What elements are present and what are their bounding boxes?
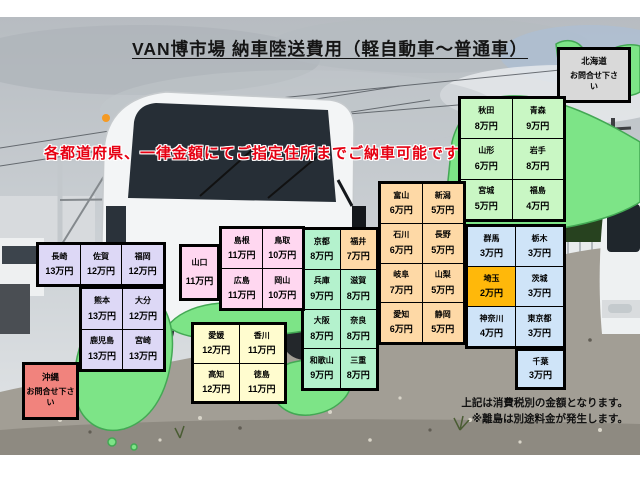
prefecture-price: 11万円 bbox=[248, 385, 276, 394]
pref-cell: 兵庫9万円 bbox=[304, 270, 340, 309]
prefecture-price: 5万円 bbox=[431, 286, 454, 295]
prefecture-price: 6万円 bbox=[390, 206, 413, 215]
letterbox-top bbox=[0, 0, 640, 17]
prefecture-price: 12万円 bbox=[87, 267, 115, 276]
pref-cell: 栃木3万円 bbox=[516, 227, 563, 266]
prefecture-name: 三重 bbox=[350, 357, 366, 365]
price-grid-kyushu-north: 長崎13万円佐賀12万円福岡12万円 bbox=[36, 242, 166, 287]
pref-cell: 埼玉2万円 bbox=[468, 267, 515, 306]
prefecture-name: 兵庫 bbox=[314, 277, 330, 285]
letterbox-bottom bbox=[0, 455, 640, 480]
pref-cell: 静岡5万円 bbox=[423, 303, 464, 342]
price-grid-yamaguchi: 山口11万円 bbox=[179, 244, 220, 301]
prefecture-name: 福島 bbox=[530, 187, 546, 195]
prefecture-name: 岐阜 bbox=[393, 271, 409, 279]
pref-cell: 奈良8万円 bbox=[341, 310, 377, 349]
prefecture-price: 5万円 bbox=[475, 202, 498, 211]
pref-cell: 福島4万円 bbox=[513, 180, 564, 219]
prefecture-name: 福井 bbox=[350, 238, 366, 246]
prefecture-price: 6万円 bbox=[475, 162, 498, 171]
pref-cell: 東京都3万円 bbox=[516, 307, 563, 346]
pref-cell: 高知12万円 bbox=[194, 364, 239, 402]
prefecture-price: 4万円 bbox=[526, 202, 549, 211]
prefecture-price: 5万円 bbox=[431, 246, 454, 255]
pref-cell: 岩手8万円 bbox=[513, 139, 564, 178]
pref-cell: 新潟5万円 bbox=[423, 184, 464, 223]
prefecture-name: 静岡 bbox=[435, 311, 451, 319]
prefecture-price: 10万円 bbox=[268, 291, 296, 300]
pref-cell: 秋田8万円 bbox=[461, 99, 512, 138]
prefecture-name: 広島 bbox=[234, 277, 250, 285]
prefecture-price: 13万円 bbox=[88, 352, 116, 361]
prefecture-price: 7万円 bbox=[390, 286, 413, 295]
pref-cell: 熊本13万円 bbox=[82, 289, 122, 329]
pref-cell: 神奈川4万円 bbox=[468, 307, 515, 346]
prefecture-name: 大分 bbox=[135, 297, 151, 305]
prefecture-name: 山梨 bbox=[435, 271, 451, 279]
prefecture-price: 11万円 bbox=[228, 251, 256, 260]
pref-cell: 宮城5万円 bbox=[461, 180, 512, 219]
prefecture-name: 東京都 bbox=[528, 315, 552, 323]
prefecture-name: 神奈川 bbox=[480, 315, 504, 323]
price-grid-kansai: 京都8万円福井7万円兵庫9万円滋賀8万円大阪8万円奈良8万円和歌山9万円三重8万… bbox=[301, 227, 379, 391]
prefecture-name: 青森 bbox=[530, 107, 546, 115]
pref-cell: 山梨5万円 bbox=[423, 264, 464, 303]
prefecture-name: 山口 bbox=[192, 259, 208, 267]
prefecture-price: 8万円 bbox=[347, 292, 370, 301]
prefecture-price: 3万円 bbox=[528, 289, 551, 298]
pref-cell: 山形6万円 bbox=[461, 139, 512, 178]
prefecture-name: 岡山 bbox=[274, 277, 290, 285]
prefecture-name: 埼玉 bbox=[484, 275, 500, 283]
price-grid-chubu: 富山6万円新潟5万円石川6万円長野5万円岐阜7万円山梨5万円愛知6万円静岡5万円 bbox=[378, 181, 466, 345]
prefecture-name: 富山 bbox=[393, 192, 409, 200]
prefecture-price: 12万円 bbox=[129, 312, 157, 321]
contact-note: お問合せ下さい bbox=[25, 387, 77, 409]
pref-cell: 茨城3万円 bbox=[516, 267, 563, 306]
prefecture-name: 宮崎 bbox=[135, 337, 151, 345]
prefecture-name: 大阪 bbox=[314, 317, 330, 325]
prefecture-price: 12万円 bbox=[129, 267, 157, 276]
prefecture-price: 5万円 bbox=[431, 206, 454, 215]
prefecture-name: 北海道 bbox=[581, 57, 607, 66]
pref-cell: 福岡12万円 bbox=[122, 245, 163, 284]
pref-cell: 徳島11万円 bbox=[240, 364, 285, 402]
prefecture-name: 福岡 bbox=[135, 253, 151, 261]
pref-cell: 石川6万円 bbox=[381, 224, 422, 263]
price-grid-chiba: 千葉3万円 bbox=[515, 348, 566, 390]
prefecture-price: 9万円 bbox=[310, 292, 333, 301]
prefecture-price: 6万円 bbox=[390, 325, 413, 334]
prefecture-price: 6万円 bbox=[390, 246, 413, 255]
price-grid-tohoku: 秋田8万円青森9万円山形6万円岩手8万円宮城5万円福島4万円 bbox=[458, 96, 566, 222]
slogan-text: 各都道府県、一律金額にてご指定住所までご納車可能です！ bbox=[44, 142, 476, 163]
pref-cell: 大阪8万円 bbox=[304, 310, 340, 349]
note-tax: 上記は消費税別の金額となります。 bbox=[461, 395, 628, 411]
prefecture-name: 京都 bbox=[314, 238, 330, 246]
pref-cell: 岐阜7万円 bbox=[381, 264, 422, 303]
prefecture-price: 8万円 bbox=[310, 332, 333, 341]
prefecture-price: 9万円 bbox=[310, 371, 333, 380]
pref-cell: 滋賀8万円 bbox=[341, 270, 377, 309]
price-grid-kyushu-south: 熊本13万円大分12万円鹿児島13万円宮崎13万円 bbox=[79, 286, 166, 372]
pref-cell: 福井7万円 bbox=[341, 230, 377, 269]
pref-cell: 香川11万円 bbox=[240, 325, 285, 363]
prefecture-price: 8万円 bbox=[475, 122, 498, 131]
pref-cell: 愛媛12万円 bbox=[194, 325, 239, 363]
prefecture-name: 秋田 bbox=[478, 107, 494, 115]
prefecture-name: 鳥取 bbox=[274, 237, 290, 245]
prefecture-price: 2万円 bbox=[480, 289, 503, 298]
prefecture-name: 鹿児島 bbox=[90, 337, 114, 345]
prefecture-price: 8万円 bbox=[526, 162, 549, 171]
note-islands: ※離島は別途料金が発生します。 bbox=[461, 411, 628, 427]
prefecture-price: 5万円 bbox=[431, 325, 454, 334]
prefecture-name: 岩手 bbox=[530, 147, 546, 155]
prefecture-price: 8万円 bbox=[310, 252, 333, 261]
pref-cell: 宮崎13万円 bbox=[123, 330, 163, 370]
prefecture-name: 栃木 bbox=[532, 235, 548, 243]
pref-cell: 佐賀12万円 bbox=[81, 245, 122, 284]
pref-cell: 島根11万円 bbox=[222, 229, 262, 268]
prefecture-name: 千葉 bbox=[533, 358, 549, 366]
prefecture-price: 9万円 bbox=[526, 122, 549, 131]
pref-cell: 青森9万円 bbox=[513, 99, 564, 138]
prefecture-price: 13万円 bbox=[45, 267, 73, 276]
prefecture-price: 4万円 bbox=[480, 329, 503, 338]
prefecture-name: 奈良 bbox=[350, 317, 366, 325]
prefecture-price: 10万円 bbox=[268, 251, 296, 260]
price-grid-shikoku: 愛媛12万円香川11万円高知12万円徳島11万円 bbox=[191, 322, 287, 404]
pref-cell: 愛知6万円 bbox=[381, 303, 422, 342]
pref-cell: 長崎13万円 bbox=[39, 245, 80, 284]
prefecture-name: 沖縄 bbox=[42, 373, 59, 382]
prefecture-price: 12万円 bbox=[202, 385, 230, 394]
prefecture-name: 茨城 bbox=[532, 275, 548, 283]
pref-cell: 群馬3万円 bbox=[468, 227, 515, 266]
prefecture-name: 山形 bbox=[478, 147, 494, 155]
prefecture-name: 和歌山 bbox=[310, 357, 334, 365]
prefecture-price: 8万円 bbox=[347, 332, 370, 341]
prefecture-price: 13万円 bbox=[88, 312, 116, 321]
prefecture-name: 佐賀 bbox=[93, 253, 109, 261]
prefecture-price: 3万円 bbox=[528, 249, 551, 258]
prefecture-name: 長崎 bbox=[51, 253, 67, 261]
prefecture-price: 13万円 bbox=[129, 352, 157, 361]
pref-cell: 大分12万円 bbox=[123, 289, 163, 329]
prefecture-price: 12万円 bbox=[202, 346, 230, 355]
prefecture-price: 3万円 bbox=[480, 249, 503, 258]
prefecture-price: 11万円 bbox=[248, 346, 276, 355]
contact-note: お問合せ下さい bbox=[568, 71, 620, 93]
prefecture-price: 11万円 bbox=[228, 291, 256, 300]
prefecture-price: 7万円 bbox=[347, 252, 370, 261]
pref-cell: 長野5万円 bbox=[423, 224, 464, 263]
prefecture-name: 徳島 bbox=[254, 371, 270, 379]
price-grid-kanto: 群馬3万円栃木3万円埼玉2万円茨城3万円神奈川4万円東京都3万円 bbox=[465, 224, 566, 349]
pref-cell: 鹿児島13万円 bbox=[82, 330, 122, 370]
prefecture-name: 滋賀 bbox=[350, 277, 366, 285]
prefecture-name: 高知 bbox=[208, 371, 224, 379]
prefecture-name: 島根 bbox=[234, 237, 250, 245]
hokkaido-box: 北海道 お問合せ下さい bbox=[557, 47, 631, 103]
pref-cell: 広島11万円 bbox=[222, 269, 262, 308]
prefecture-name: 愛知 bbox=[393, 311, 409, 319]
prefecture-name: 香川 bbox=[254, 332, 270, 340]
footer-notes: 上記は消費税別の金額となります。 ※離島は別途料金が発生します。 bbox=[461, 395, 628, 427]
pref-cell: 千葉3万円 bbox=[518, 351, 563, 387]
pref-cell: 京都8万円 bbox=[304, 230, 340, 269]
prefecture-name: 石川 bbox=[393, 231, 409, 239]
prefecture-name: 愛媛 bbox=[208, 332, 224, 340]
pref-cell: 三重8万円 bbox=[341, 349, 377, 388]
page-title: VAN博市場 納車陸送費用（軽自動車～普通車） bbox=[100, 36, 560, 61]
prefecture-name: 宮城 bbox=[478, 187, 494, 195]
pref-cell: 和歌山9万円 bbox=[304, 349, 340, 388]
pref-cell: 山口11万円 bbox=[182, 247, 217, 298]
pref-cell: 富山6万円 bbox=[381, 184, 422, 223]
pref-cell: 鳥取10万円 bbox=[263, 229, 303, 268]
prefecture-price: 3万円 bbox=[528, 329, 551, 338]
flyer-canvas: VAN博市場 納車陸送費用（軽自動車～普通車） 各都道府県、一律金額にてご指定住… bbox=[0, 0, 640, 480]
prefecture-name: 新潟 bbox=[435, 192, 451, 200]
prefecture-name: 群馬 bbox=[484, 235, 500, 243]
prefecture-price: 11万円 bbox=[186, 277, 214, 286]
prefecture-name: 長野 bbox=[435, 231, 451, 239]
prefecture-price: 3万円 bbox=[529, 371, 552, 380]
prefecture-price: 8万円 bbox=[347, 371, 370, 380]
price-grid-chugoku: 島根11万円鳥取10万円広島11万円岡山10万円 bbox=[219, 226, 305, 311]
pref-cell: 岡山10万円 bbox=[263, 269, 303, 308]
okinawa-box: 沖縄 お問合せ下さい bbox=[22, 362, 79, 420]
prefecture-name: 熊本 bbox=[94, 297, 110, 305]
